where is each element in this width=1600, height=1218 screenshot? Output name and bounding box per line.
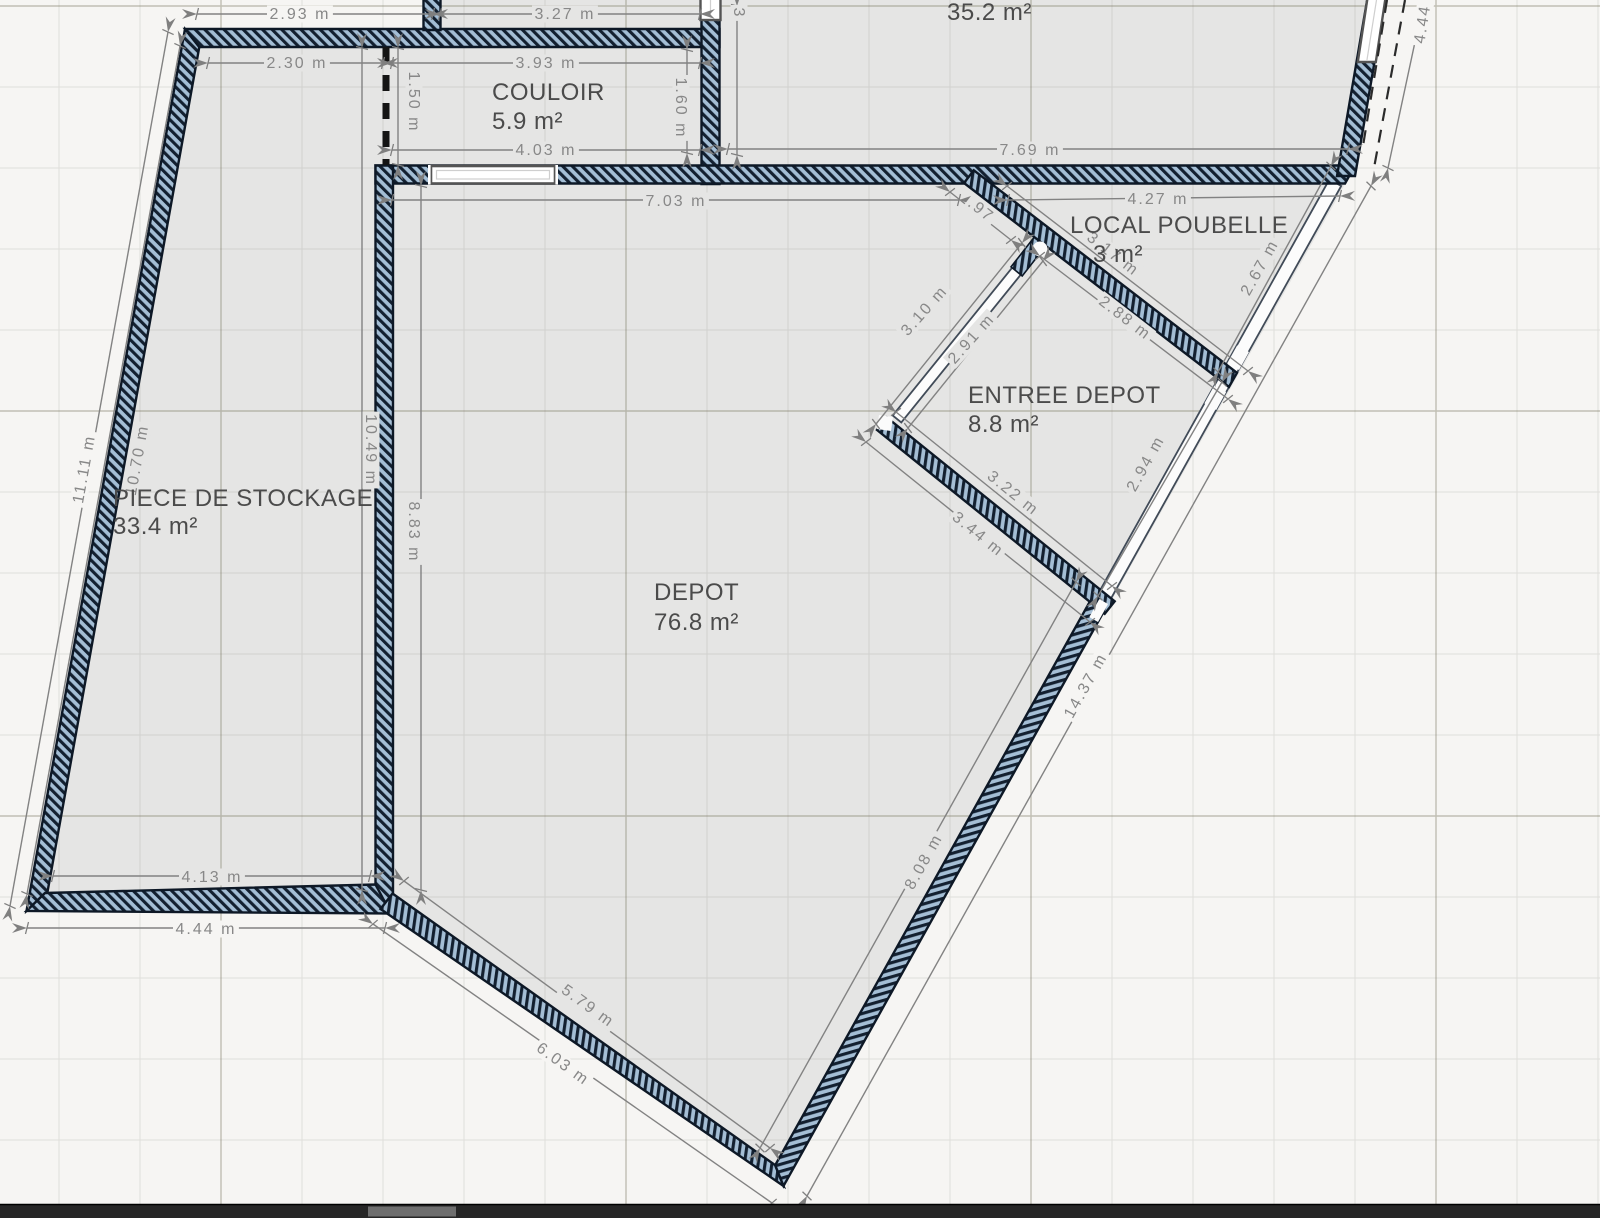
svg-text:3 m²: 3 m²	[1093, 241, 1143, 268]
svg-text:8.83 m: 8.83 m	[405, 502, 422, 563]
svg-text:3: 3	[730, 8, 747, 19]
svg-text:1.60 m: 1.60 m	[672, 78, 689, 139]
svg-text:4.27 m: 4.27 m	[1128, 191, 1189, 208]
svg-text:7.69 m: 7.69 m	[1000, 142, 1061, 159]
svg-text:10.49 m: 10.49 m	[362, 414, 379, 486]
svg-text:DEPOT: DEPOT	[654, 579, 739, 606]
svg-text:4.03 m: 4.03 m	[516, 142, 577, 159]
svg-text:8.8 m²: 8.8 m²	[968, 411, 1039, 438]
svg-text:5.9 m²: 5.9 m²	[492, 108, 563, 135]
svg-text:7.03 m: 7.03 m	[646, 193, 707, 210]
svg-text:33.4 m²: 33.4 m²	[113, 513, 198, 540]
svg-text:2.30 m: 2.30 m	[267, 55, 328, 72]
svg-text:2.93 m: 2.93 m	[270, 6, 331, 23]
svg-text:4.44 m: 4.44 m	[176, 921, 237, 938]
svg-text:ENTREE DEPOT: ENTREE DEPOT	[968, 382, 1161, 409]
svg-text:3.27 m: 3.27 m	[535, 6, 596, 23]
svg-text:LOCAL POUBELLE: LOCAL POUBELLE	[1070, 212, 1288, 239]
svg-text:1.50 m: 1.50 m	[405, 72, 422, 133]
svg-text:35.2 m²: 35.2 m²	[947, 0, 1032, 26]
svg-text:3.93 m: 3.93 m	[516, 55, 577, 72]
svg-text:COULOIR: COULOIR	[492, 79, 605, 106]
svg-text:PIECE DE STOCKAGE: PIECE DE STOCKAGE	[113, 485, 373, 512]
svg-text:4.13 m: 4.13 m	[182, 869, 243, 886]
svg-text:76.8 m²: 76.8 m²	[654, 609, 739, 636]
